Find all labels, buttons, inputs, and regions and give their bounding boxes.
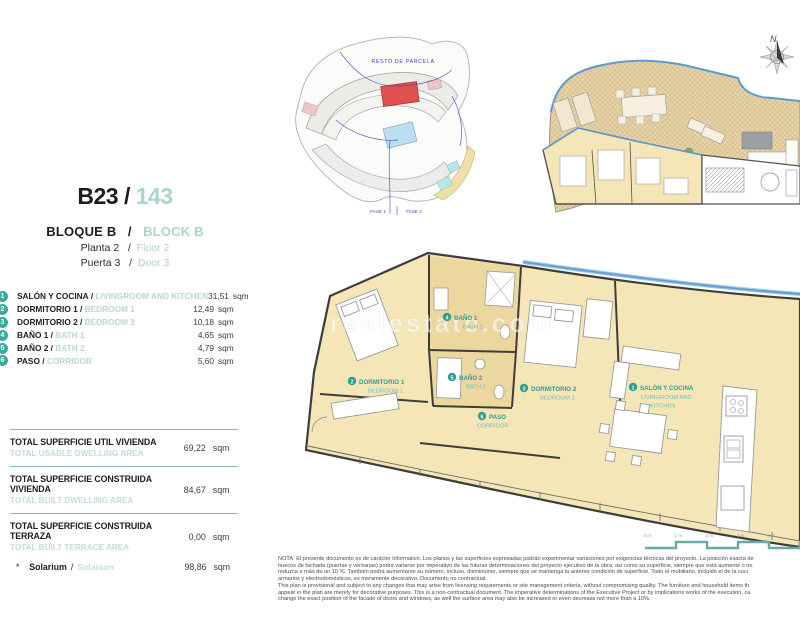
room-row-dorm1: 2 DORMITORIO 1 / BEDROOM 1 12,49sqm bbox=[0, 303, 250, 316]
room-number-badge: 4 bbox=[0, 330, 8, 341]
svg-text:KITCHEN: KITCHEN bbox=[650, 404, 675, 410]
scale-tick-1: 1 m. bbox=[675, 533, 684, 538]
site-resto-label: RESTO DE PARCELA bbox=[371, 59, 434, 65]
main-floor-plan: realestate.com 4 BAÑO 1 BATH 1 2 DORMITO… bbox=[306, 253, 800, 547]
svg-text:6: 6 bbox=[481, 414, 484, 420]
disclaimer-line: This plan is provisional and subject to … bbox=[278, 583, 800, 590]
svg-text:2: 2 bbox=[351, 379, 354, 385]
svg-text:CORRIDOR: CORRIDOR bbox=[477, 424, 509, 430]
room-row-paso: 6 PASO / CORRIDOR 5,60sqm bbox=[0, 354, 250, 367]
svg-text:PASO: PASO bbox=[489, 414, 506, 421]
svg-text:DORMITORIO 1: DORMITORIO 1 bbox=[359, 379, 405, 386]
svg-text:DORMITORIO 2: DORMITORIO 2 bbox=[531, 386, 577, 393]
room-number-badge: 1 bbox=[0, 291, 8, 302]
compass-north-label: N bbox=[770, 34, 777, 44]
overview-stairs bbox=[706, 168, 744, 192]
room-row-bath1: 4 BAÑO 1 / BATH 1 4,65sqm bbox=[0, 329, 250, 342]
overview-plan bbox=[543, 61, 800, 212]
totals-section: TOTAL SUPERFICIE UTIL VIVIENDA TOTAL USA… bbox=[10, 429, 238, 578]
svg-text:4: 4 bbox=[446, 315, 449, 321]
disclaimer-line: appear in the plan are merely for decora… bbox=[278, 590, 800, 597]
overview-tank bbox=[761, 173, 779, 191]
total-terrace-area: TOTAL SUPERFICIE CONSTRUIDA TERRAZA TOTA… bbox=[10, 514, 238, 560]
watermark: realestate.com bbox=[330, 308, 554, 338]
room-row-dorm2: 3 DORMITORIO 2 / BEDROOM 2 10,18sqm bbox=[0, 316, 250, 329]
scale-tick-4: 4 m. bbox=[768, 533, 777, 538]
fase1-label: FASE 1 bbox=[370, 209, 386, 214]
room-number-badge: 5 bbox=[0, 343, 8, 354]
svg-text:BEDROOM 2: BEDROOM 2 bbox=[540, 396, 575, 402]
site-pink-block-2 bbox=[427, 79, 441, 90]
floor-line: Planta 2 / Floor 2 bbox=[0, 242, 250, 254]
unit-header: B23 / 143 BLOQUE B / BLOCK B Planta 2 / … bbox=[0, 183, 250, 269]
block-line: BLOQUE B / BLOCK B bbox=[0, 224, 250, 239]
svg-text:SALÓN Y COCINA: SALÓN Y COCINA bbox=[640, 384, 694, 392]
room-number-badge: 3 bbox=[0, 317, 8, 328]
svg-text:3: 3 bbox=[523, 386, 526, 392]
room-list: 1 SALÓN Y COCINA / LIVINGROOM AND KITCHE… bbox=[0, 290, 250, 367]
scale-tick-2: 2 m. bbox=[706, 533, 715, 538]
terrace-mat bbox=[742, 132, 772, 149]
room-number-badge: 6 bbox=[0, 355, 8, 366]
scale-tick-0: 0 m. bbox=[644, 533, 653, 538]
unit-code: B23 bbox=[77, 183, 118, 209]
door-line: Puerta 3 / Door 3 bbox=[0, 257, 250, 269]
disclaimer-line: change the exact position of the facade … bbox=[278, 596, 800, 603]
scale-tick-3: 3 m. bbox=[737, 533, 746, 538]
room-row-bath2: 5 BAÑO 2 / BATH 2 4,79sqm bbox=[0, 342, 250, 355]
total-usable-area: TOTAL SUPERFICIE UTIL VIVIENDA TOTAL USA… bbox=[10, 430, 238, 466]
compass: N bbox=[760, 34, 794, 74]
svg-text:5: 5 bbox=[451, 375, 454, 381]
floor-plan-sheet: { "header": { "unit_code": "B23", "sep":… bbox=[0, 0, 800, 640]
legal-disclaimer: NOTA: El presente documento es de caráct… bbox=[278, 556, 800, 603]
fase2-label: FASE 2 bbox=[406, 209, 422, 214]
unit-title: B23 / 143 bbox=[0, 183, 250, 210]
solarium-row: * Solarium / Solarium 98,86 sqm bbox=[10, 562, 238, 578]
total-built-area: TOTAL SUPERFICIE CONSTRUIDA VIVIENDA TOT… bbox=[10, 467, 238, 513]
svg-text:BEDROOM 1: BEDROOM 1 bbox=[368, 389, 403, 395]
svg-text:LIVINGROOM AND: LIVINGROOM AND bbox=[641, 395, 692, 401]
room-row-salon: 1 SALÓN Y COCINA / LIVINGROOM AND KITCHE… bbox=[0, 290, 250, 303]
disclaimer-line: NOTA: El presente documento es de caráct… bbox=[278, 556, 800, 563]
svg-text:BATH 2: BATH 2 bbox=[466, 385, 486, 391]
disclaimer-line: reduzca e más de un 10 %. También podrá … bbox=[278, 569, 800, 576]
disclaimer-line: armarios y electrodomésticos, es meramen… bbox=[278, 576, 800, 583]
site-plan: RESTO DE PARCELA FASE 1 FASE 2 bbox=[296, 37, 475, 215]
disclaimer-line: huecos de fachada (puertas y ventanas) p… bbox=[278, 563, 800, 570]
svg-text:1: 1 bbox=[632, 385, 635, 391]
room-number-badge: 2 bbox=[0, 304, 8, 315]
unit-number: 143 bbox=[136, 183, 173, 209]
svg-text:BAÑO 1: BAÑO 1 bbox=[454, 315, 478, 322]
svg-text:BAÑO 2: BAÑO 2 bbox=[459, 375, 483, 382]
svg-text:BATH 1: BATH 1 bbox=[463, 325, 483, 331]
